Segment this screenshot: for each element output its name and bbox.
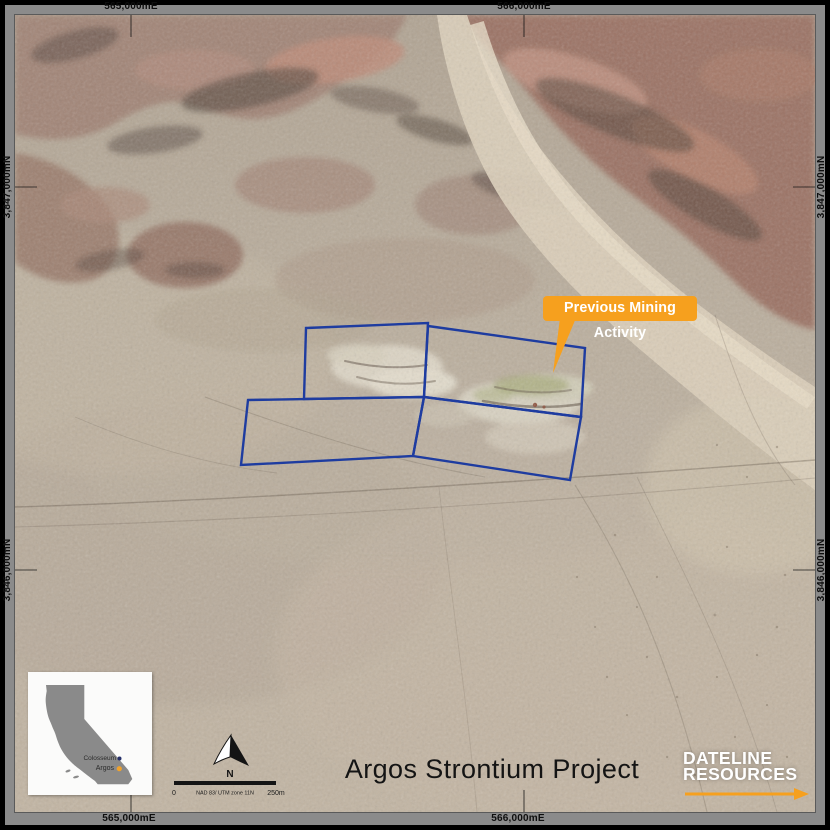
grid-label-top-east: 566,000mE <box>497 2 551 12</box>
dateline-logo: DATELINE RESOURCES <box>683 750 811 801</box>
california-inset-map: Colosseum Argos <box>28 672 152 795</box>
scale-max-label: 250m <box>267 790 285 797</box>
logo-arrow-icon <box>683 787 811 801</box>
previous-mining-callout: Previous Mining Activity <box>543 296 697 321</box>
argos-dot <box>117 766 122 771</box>
grid-label-bottom-east: 566,000mE <box>491 814 545 824</box>
claim-boundary-southwest <box>241 397 424 465</box>
claim-boundary-northwest <box>304 323 428 399</box>
grid-label-left-north: 3,847,000mN <box>3 156 13 219</box>
scale-zero-label: 0 <box>172 790 176 797</box>
north-arrow-icon <box>214 735 249 766</box>
channel-island <box>73 775 79 779</box>
map-title: Argos Strontium Project <box>345 754 639 785</box>
logo-line2: RESOURCES <box>683 766 811 782</box>
grid-label-left-south: 3,846,000mN <box>3 539 13 602</box>
argos-label: Argos <box>86 765 114 772</box>
colosseum-label: Colosseum <box>78 755 116 762</box>
north-label: N <box>226 769 233 780</box>
map-furniture: N 0 NAD 83/ UTM zone 11N 250m <box>155 715 305 810</box>
scale-bar <box>174 781 276 785</box>
grid-label-right-north: 3,847,000mN <box>817 156 827 219</box>
grid-label-bottom-west: 565,000mE <box>102 814 156 824</box>
claim-boundary-southeast <box>413 397 581 480</box>
california-shape <box>28 672 152 795</box>
channel-island <box>65 769 71 773</box>
grid-label-right-south: 3,846,000mN <box>817 539 827 602</box>
colosseum-dot <box>118 757 122 761</box>
map-frame: 565,000mE 566,000mE 565,000mE 566,000mE … <box>0 0 830 830</box>
datum-label: NAD 83/ UTM zone 11N <box>196 791 254 797</box>
map-canvas: Previous Mining Activity Colosseum Argos… <box>15 15 815 812</box>
grid-label-top-west: 565,000mE <box>104 2 158 12</box>
